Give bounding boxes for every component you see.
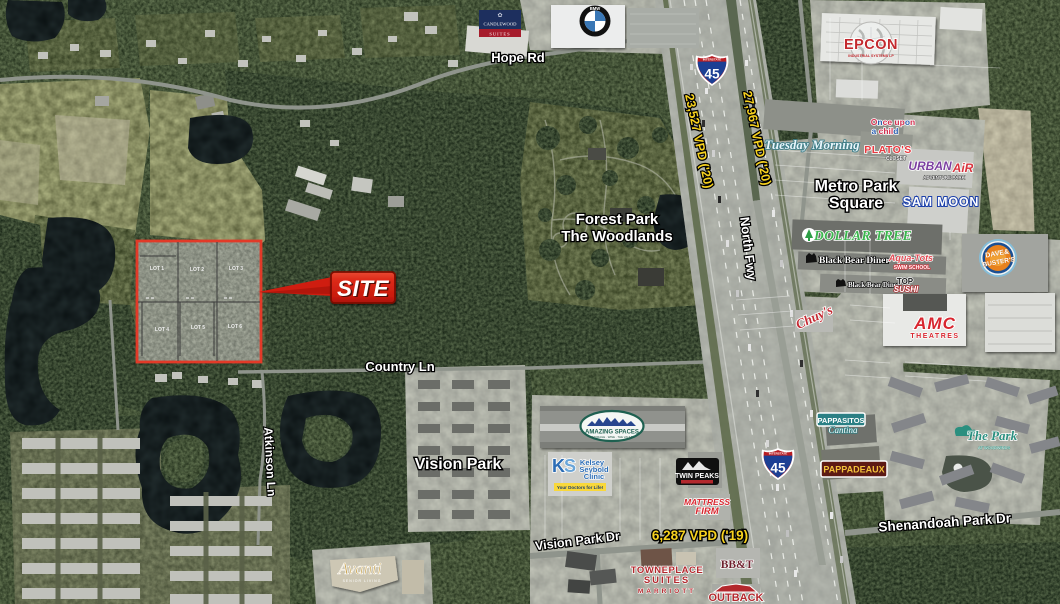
svg-text:AMC: AMC: [913, 314, 956, 333]
svg-text:EPCON: EPCON: [844, 37, 898, 53]
svg-text:CLOSET: CLOSET: [886, 156, 906, 162]
svg-text:Hope Rd: Hope Rd: [491, 50, 545, 65]
svg-text:Tuesday Morning: Tuesday Morning: [764, 137, 860, 152]
svg-text:PAPPASITOS: PAPPASITOS: [817, 416, 864, 425]
svg-text:LOT 6: LOT 6: [228, 324, 242, 330]
svg-text:TWIN PEAKS: TWIN PEAKS: [675, 473, 719, 480]
svg-text:a child: a child: [872, 126, 899, 136]
svg-text:THEATRES: THEATRES: [910, 333, 959, 340]
svg-text:Country Ln: Country Ln: [365, 359, 434, 374]
svg-text:SUSHI: SUSHI: [894, 285, 919, 294]
svg-text:The Park: The Park: [967, 428, 1018, 443]
svg-text:Metro Park: Metro Park: [815, 178, 898, 195]
svg-text:Forest Park: Forest Park: [576, 211, 659, 228]
svg-text:INTERSTATE: INTERSTATE: [703, 57, 722, 61]
svg-text:DOLLAR TREE: DOLLAR TREE: [813, 228, 912, 243]
svg-text:PAPPADEAUX: PAPPADEAUX: [823, 465, 884, 475]
svg-text:SITE: SITE: [337, 276, 390, 301]
svg-text:SWIM SCHOOL: SWIM SCHOOL: [894, 265, 930, 271]
svg-text:Cantina: Cantina: [828, 425, 858, 435]
svg-text:INDUSTRIAL SYSTEMS LP: INDUSTRIAL SYSTEMS LP: [848, 54, 894, 58]
svg-text:STORAGE · WINE · THE VAULT: STORAGE · WINE · THE VAULT: [592, 435, 633, 439]
svg-text:Clinic: Clinic: [584, 472, 604, 481]
svg-text:SUITES: SUITES: [644, 575, 690, 586]
svg-text:Black Bear Diner: Black Bear Diner: [819, 256, 890, 266]
svg-text:S: S: [564, 456, 576, 476]
svg-text:AT WOODWINDS: AT WOODWINDS: [978, 445, 1010, 450]
svg-text:Avanti: Avanti: [337, 559, 382, 578]
svg-text:6,287 VPD ('19): 6,287 VPD ('19): [652, 528, 748, 543]
svg-text:BB&T: BB&T: [721, 559, 754, 571]
svg-text:Vision Park: Vision Park: [415, 456, 502, 473]
svg-text:Your Doctors for Life!: Your Doctors for Life!: [557, 485, 604, 490]
svg-text:Aqua-Tots: Aqua-Tots: [888, 253, 933, 263]
svg-text:AiR: AiR: [952, 161, 974, 175]
svg-text:Black Bear Diner: Black Bear Diner: [848, 281, 900, 289]
svg-text:✿: ✿: [497, 12, 502, 19]
svg-text:The Woodlands: The Woodlands: [561, 228, 672, 245]
svg-text:45: 45: [704, 66, 720, 81]
svg-text:INTERSTATE: INTERSTATE: [769, 451, 788, 455]
svg-text:LOT 2: LOT 2: [190, 267, 204, 273]
svg-text:ADVENTURE PARK: ADVENTURE PARK: [923, 175, 965, 180]
svg-text:CANDLEWOOD: CANDLEWOOD: [484, 22, 518, 27]
svg-text:SUITES: SUITES: [489, 32, 510, 37]
svg-text:45: 45: [770, 460, 786, 475]
svg-text:LOT 4: LOT 4: [155, 327, 169, 333]
svg-text:URBAN: URBAN: [908, 159, 952, 173]
svg-text:OUTBACK: OUTBACK: [709, 592, 764, 604]
svg-text:SENIOR LIVING: SENIOR LIVING: [343, 579, 382, 583]
svg-text:FIRM: FIRM: [695, 506, 719, 517]
svg-text:LOT 3: LOT 3: [229, 266, 243, 272]
svg-text:BMW: BMW: [590, 6, 601, 11]
svg-text:MARRIOTT: MARRIOTT: [638, 588, 696, 595]
svg-text:LOT 5: LOT 5: [191, 325, 205, 331]
svg-text:Square: Square: [829, 195, 883, 212]
svg-text:LOT 1: LOT 1: [150, 266, 164, 272]
svg-text:SAM MOON: SAM MOON: [903, 195, 980, 209]
svg-text:PLATO'S: PLATO'S: [864, 144, 912, 156]
